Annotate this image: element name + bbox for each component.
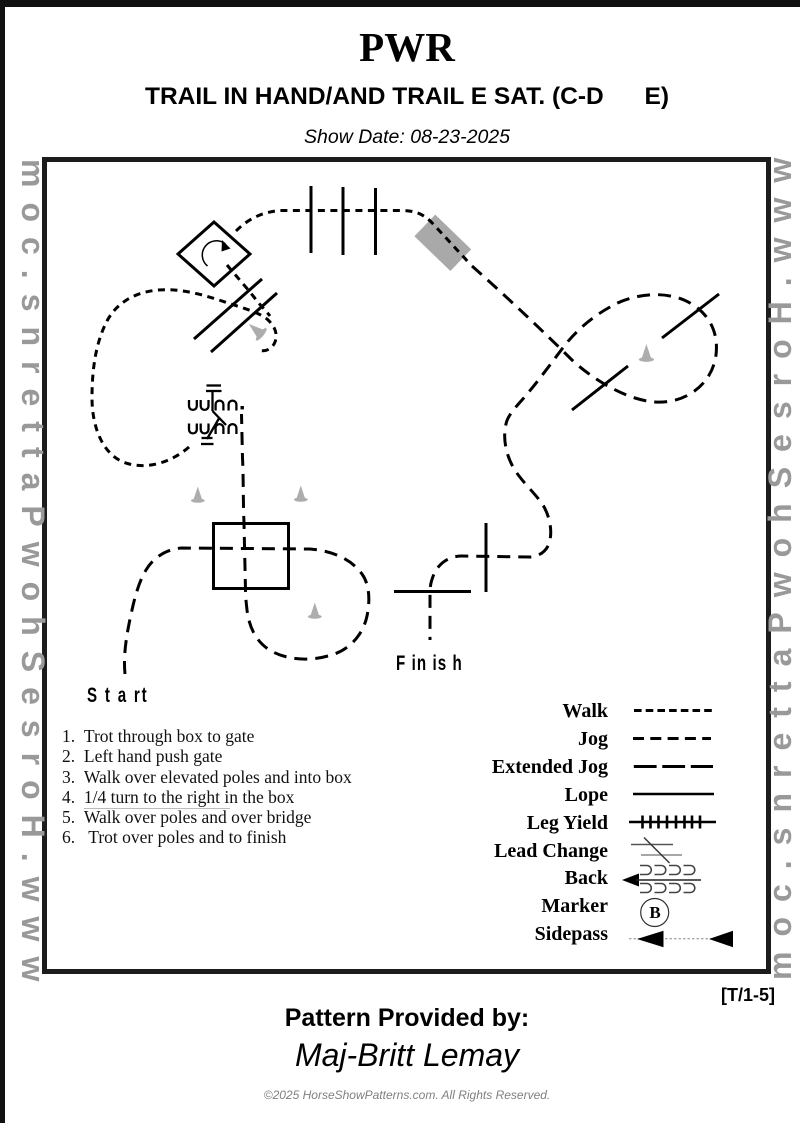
svg-text:moc.snrettaPwohSesroH.www: moc.snrettaPwohSesroH.www [762,143,798,980]
svg-text:moc.snrettaPwohSesroH.www: moc.snrettaPwohSesroH.www [15,159,51,996]
